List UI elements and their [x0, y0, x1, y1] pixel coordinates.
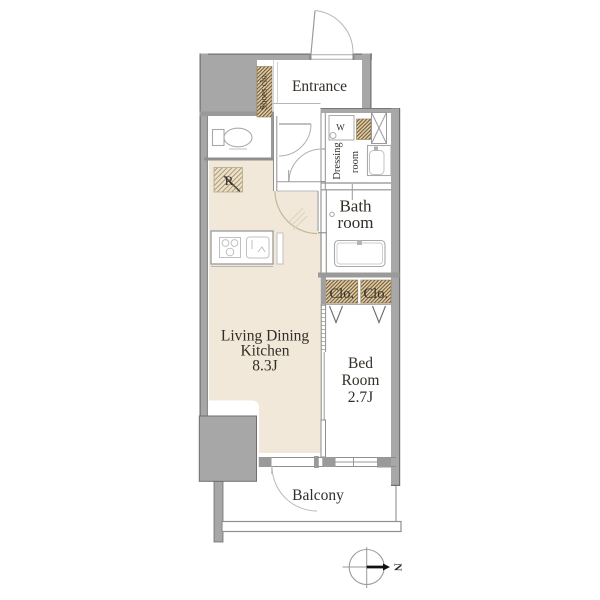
- svg-text:W: W: [336, 123, 345, 133]
- svg-text:2.7J: 2.7J: [348, 389, 373, 406]
- svg-text:R: R: [225, 173, 234, 188]
- svg-text:Clo.: Clo.: [330, 286, 355, 302]
- svg-text:room: room: [338, 213, 374, 232]
- svg-text:Room: Room: [342, 372, 380, 389]
- svg-text:Shoes clo.: Shoes clo.: [259, 73, 269, 110]
- svg-text:room: room: [350, 151, 361, 173]
- svg-text:Bed: Bed: [348, 355, 373, 372]
- svg-text:Entrance: Entrance: [292, 78, 347, 95]
- svg-text:Clo.: Clo.: [364, 286, 389, 302]
- svg-text:Dressing: Dressing: [332, 142, 343, 180]
- svg-text:Balcony: Balcony: [292, 487, 344, 504]
- svg-text:8.3J: 8.3J: [252, 358, 277, 375]
- svg-text:N: N: [392, 563, 404, 571]
